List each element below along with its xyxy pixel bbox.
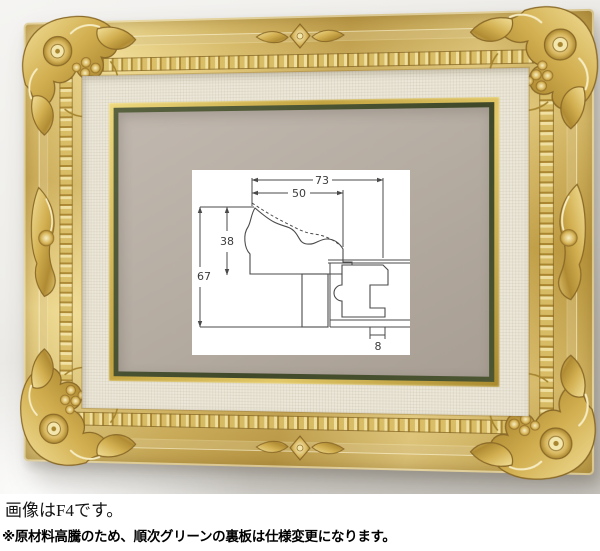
dim-label-67: 67 [197,270,211,283]
caption-area: 画像はF4です。 ※原材料高騰のため、順次グリーンの裏板は仕様変更になります。 [0,494,600,551]
product-screenshot: 73 50 38 67 8 画像はF4です。 ※原材料高騰のため、順次グリーンの… [0,0,600,551]
carved-band-right [539,51,554,433]
dim-label-8: 8 [375,340,382,353]
dim-label-38: 38 [220,235,234,248]
caption-size-note: 画像はF4です。 [5,496,123,521]
cross-section-drawing: 73 50 38 67 8 [192,170,410,355]
sprig-ornament-icon [252,432,348,464]
product-photo: 73 50 38 67 8 [0,0,600,494]
molding-profile [245,203,352,327]
caption-spec-notice: ※原材料高騰のため、順次グリーンの裏板は仕様変更になります。 [2,525,396,545]
cross-section-diagram: 73 50 38 67 8 [192,170,410,355]
dim-label-50: 50 [292,187,306,200]
dim-label-73: 73 [315,174,329,187]
carved-band-left [59,61,72,424]
sprig-ornament-icon [252,20,348,52]
